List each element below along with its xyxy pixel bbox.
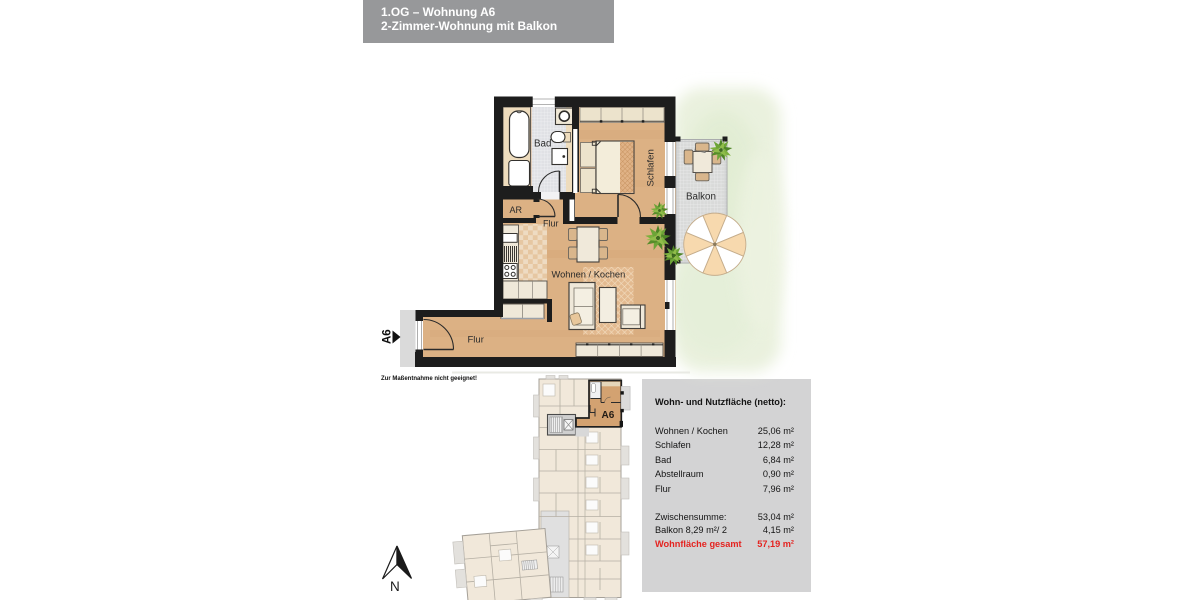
- svg-text:Bad: Bad: [534, 139, 551, 150]
- svg-text:A6: A6: [382, 329, 394, 344]
- svg-text:N: N: [390, 579, 400, 594]
- svg-text:Flur: Flur: [543, 219, 559, 229]
- svg-text:Wohnen / Kochen: Wohnen / Kochen: [552, 270, 626, 280]
- svg-text:AR: AR: [510, 205, 523, 215]
- svg-text:Flur: Flur: [468, 335, 484, 346]
- svg-text:Schlafen: Schlafen: [646, 149, 657, 186]
- svg-text:Balkon: Balkon: [686, 192, 716, 203]
- svg-text:A6: A6: [602, 410, 615, 421]
